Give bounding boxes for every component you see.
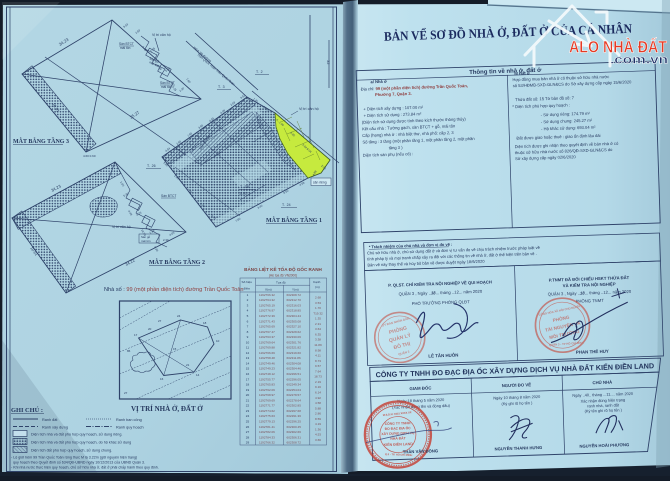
- svg-text:602300.45: 602300.45: [287, 425, 302, 429]
- svg-text:19: 19: [246, 388, 250, 392]
- svg-text:602312.70: 602312.70: [287, 298, 302, 302]
- svg-text:Diện tích nhà và đất phù hợp q: Diện tích nhà và đất phù hợp quy hoạch, …: [31, 433, 122, 437]
- svg-text:1192769.69: 1192769.69: [259, 398, 275, 402]
- svg-text:602301.76: 602301.76: [287, 340, 302, 344]
- svg-text:602302.66: 602302.66: [287, 430, 302, 434]
- svg-text:602291.36: 602291.36: [287, 414, 302, 418]
- svg-text:27: 27: [158, 319, 162, 323]
- svg-text:1192769.64: 1192769.64: [259, 340, 275, 344]
- svg-text:Ranh xây dựng: Ranh xây dựng: [42, 426, 68, 430]
- svg-text:4.53: 4.53: [315, 433, 321, 437]
- svg-text:a/ Nhà ở: a/ Nhà ở: [370, 79, 387, 85]
- svg-text:3.38: 3.38: [315, 338, 321, 342]
- svg-text:602327.10: 602327.10: [287, 325, 302, 329]
- svg-text:11: 11: [246, 346, 249, 350]
- svg-text:602296.25: 602296.25: [287, 420, 302, 424]
- svg-text:1.70: 1.70: [315, 306, 321, 310]
- svg-text:Y(m): Y(m): [292, 288, 299, 292]
- svg-text:602302.85: 602302.85: [287, 404, 302, 408]
- svg-text:9: 9: [247, 335, 249, 339]
- svg-text:Tọa độ: Tọa độ: [276, 281, 286, 285]
- svg-text:1192755.77: 1192755.77: [259, 377, 275, 381]
- svg-text:28: 28: [246, 435, 250, 439]
- svg-text:6.35: 6.35: [315, 332, 321, 336]
- svg-text:Nhà số : 99 (một phần diện tíc: Nhà số : 99 (một phần diện tích) đường T…: [104, 287, 243, 293]
- svg-text:1192765.19: 1192765.19: [259, 303, 275, 307]
- svg-text:1192762.09: 1192762.09: [259, 388, 275, 392]
- svg-text:2.19: 2.19: [315, 380, 321, 384]
- svg-text:NHÀ ĐẤT: NHÀ ĐẤT: [390, 435, 406, 441]
- svg-text:1.35: 1.35: [315, 317, 321, 321]
- svg-text:602296.51: 602296.51: [287, 372, 302, 376]
- svg-text:602304.08: 602304.08: [287, 362, 302, 366]
- svg-text:20: 20: [148, 327, 152, 331]
- svg-text:602278.64: 602278.64: [287, 398, 302, 402]
- svg-text:1192784.33: 1192784.33: [259, 435, 275, 439]
- svg-text:3.64: 3.64: [315, 327, 321, 331]
- svg-text:VỊ TRÍ NHÀ Ở, ĐẤT Ở: VỊ TRÍ NHÀ Ở, ĐẤT Ở: [131, 405, 203, 413]
- svg-text:17: 17: [246, 377, 250, 381]
- svg-text:Diện tích nhà và đất phù hợp q: Diện tích nhà và đất phù hợp quy hoạch, …: [31, 441, 131, 445]
- svg-text:Ranh ban công: Ranh ban công: [116, 418, 142, 422]
- svg-text:602328.62: 602328.62: [287, 330, 302, 334]
- svg-text:26: 26: [246, 425, 250, 429]
- svg-text:10: 10: [246, 340, 250, 344]
- svg-text:GHI CHÚ :: GHI CHÚ :: [11, 406, 43, 414]
- svg-text:(m): (m): [315, 285, 320, 289]
- svg-text:b/ Đất ở: b/ Đất ở: [514, 71, 530, 76]
- svg-text:9.16: 9.16: [315, 385, 321, 389]
- svg-text:(Hệ tọa độ VN2000): (Hệ tọa độ VN2000): [269, 274, 297, 278]
- svg-text:20: 20: [246, 393, 250, 397]
- svg-text:Cạnh: Cạnh: [313, 280, 321, 284]
- svg-text:25: 25: [246, 420, 250, 424]
- svg-text:1192765.69: 1192765.69: [259, 325, 275, 329]
- svg-text:2.86: 2.86: [315, 412, 321, 416]
- svg-text:602308.72: 602308.72: [287, 293, 302, 297]
- svg-text:mái tôn: mái tôn: [120, 46, 131, 50]
- svg-text:86: 86: [127, 349, 131, 353]
- svg-text:5: 5: [247, 314, 249, 318]
- svg-text:1192764.32: 1192764.32: [259, 298, 275, 302]
- svg-text:4: 4: [247, 309, 249, 313]
- svg-text:602254.04: 602254.04: [287, 388, 302, 392]
- svg-text:5.88: 5.88: [315, 406, 321, 410]
- svg-text:Ranh đất: Ranh đất: [42, 418, 58, 422]
- svg-text:3.66: 3.66: [315, 438, 321, 442]
- svg-text:602304.44: 602304.44: [287, 314, 302, 318]
- svg-text:16: 16: [160, 377, 164, 381]
- svg-text:602249.34: 602249.34: [287, 383, 302, 387]
- svg-text:1192748.12: 1192748.12: [259, 372, 275, 376]
- svg-text:4.58: 4.58: [315, 401, 321, 405]
- svg-text:8: 8: [247, 330, 249, 334]
- svg-text:T19.32: T19.32: [313, 311, 323, 315]
- svg-text:8.59: 8.59: [315, 417, 321, 421]
- svg-text:Vị trí căn hộ: Vị trí căn hộ: [112, 225, 131, 229]
- svg-text:602296.05: 602296.05: [287, 377, 302, 381]
- svg-text:7: 7: [247, 325, 249, 329]
- svg-text:1192749.46: 1192749.46: [259, 362, 275, 366]
- svg-text:1192767.47: 1192767.47: [259, 330, 275, 334]
- svg-text:1: 1: [247, 293, 249, 297]
- svg-text:T. 26: T. 26: [147, 164, 156, 168]
- svg-text:1192782.06: 1192782.06: [259, 430, 275, 434]
- svg-text:602278.57: 602278.57: [287, 393, 302, 397]
- svg-text:mái tôn: mái tôn: [161, 85, 172, 89]
- svg-text:2.68: 2.68: [315, 296, 321, 300]
- svg-text:tầng 3 ): tầng 3 ): [389, 145, 404, 150]
- svg-text:21: 21: [186, 363, 190, 367]
- svg-text:Số hiệu: Số hiệu: [242, 280, 253, 284]
- svg-text:X(m): X(m): [265, 288, 272, 292]
- svg-text:T. 3: T. 3: [218, 85, 225, 89]
- svg-text:quy hoạch theo Quyết định số 6: quy hoạch theo Quyết định số 634/QĐ-UBND…: [13, 461, 145, 465]
- svg-text:MẰT BẰNG TẦNG 3: MẰT BẰNG TẦNG 3: [13, 137, 69, 145]
- svg-text:24: 24: [177, 314, 181, 318]
- svg-text:602321.82: 602321.82: [287, 346, 302, 350]
- svg-text:602306.31: 602306.31: [287, 435, 302, 439]
- svg-text:4.92: 4.92: [315, 396, 321, 400]
- svg-text:NGƯỜI ĐO VẼ: NGƯỜI ĐO VẼ: [502, 382, 532, 388]
- svg-text:1192779.13: 1192779.13: [259, 420, 275, 424]
- svg-text:1192769.88: 1192769.88: [259, 346, 275, 350]
- svg-text:- Lộ giới hẻm 99 Trần Quốc Toả: - Lộ giới hẻm 99 Trần Quốc Toản rộng thự…: [11, 456, 137, 460]
- svg-text:GIAM ĐỐC: GIAM ĐỐC: [409, 385, 431, 391]
- svg-text:điểm: điểm: [244, 287, 251, 291]
- svg-text:23: 23: [246, 409, 250, 413]
- svg-text:8.73: 8.73: [315, 359, 321, 363]
- svg-text:T. 16: T. 16: [240, 185, 249, 189]
- svg-text:Vị trí căn hộ: Vị trí căn hộ: [299, 107, 319, 111]
- svg-text:mái tôn: mái tôn: [141, 239, 151, 243]
- svg-text:602316.03: 602316.03: [287, 303, 302, 307]
- svg-text:T. 2: T. 2: [256, 70, 263, 74]
- svg-text:BẢNG LIỆT KÊ TỐA ĐỘ GỐC RANH: BẢNG LIỆT KÊ TỐA ĐỘ GỐC RANH: [244, 265, 322, 272]
- svg-text:15: 15: [246, 367, 250, 371]
- svg-text:602297.68: 602297.68: [287, 409, 302, 413]
- svg-text:1192772.39: 1192772.39: [259, 314, 275, 318]
- svg-text:16: 16: [246, 372, 250, 376]
- svg-text:(Ký ghi rõ họ tên ): (Ký ghi rõ họ tên ): [501, 400, 533, 406]
- svg-text:1192768.97: 1192768.97: [259, 393, 275, 397]
- svg-text:14: 14: [196, 373, 200, 377]
- svg-text:CHỦ NHÀ: CHỦ NHÀ: [592, 380, 612, 386]
- svg-text:Ranh quy hoạch: Ranh quy hoạch: [116, 426, 144, 430]
- svg-text:4.19: 4.19: [315, 422, 321, 426]
- svg-text:14: 14: [246, 362, 250, 366]
- svg-text:13: 13: [246, 356, 250, 360]
- svg-text:PHÒNG TNMT: PHÒNG TNMT: [576, 298, 605, 304]
- svg-text:1192774.62: 1192774.62: [259, 409, 275, 413]
- svg-text:9.57: 9.57: [315, 364, 321, 368]
- svg-text:1192775.63: 1192775.63: [259, 414, 275, 418]
- svg-text:11.89: 11.89: [314, 343, 322, 347]
- svg-text:2.30: 2.30: [163, 238, 169, 242]
- svg-text:1192749.23: 1192749.23: [259, 367, 275, 371]
- svg-text:PHAN THẾ HUY: PHAN THẾ HUY: [576, 349, 609, 355]
- svg-text:17: 17: [134, 333, 138, 337]
- svg-text:Vị trí căn hộ: Vị trí căn hộ: [152, 33, 171, 37]
- svg-text:1192765.83: 1192765.83: [259, 383, 275, 387]
- svg-text:1102.1: 1102.1: [239, 192, 250, 196]
- svg-text:CÔNG TY TNHH: CÔNG TY TNHH: [385, 420, 411, 426]
- svg-text:27: 27: [124, 391, 128, 395]
- svg-text:.com.vn: .com.vn: [610, 55, 668, 67]
- svg-text:6: 6: [247, 319, 249, 323]
- svg-text:3: 3: [247, 303, 249, 307]
- svg-text:KIẾN ĐIỀN LAND: KIẾN ĐIỀN LAND: [384, 441, 414, 447]
- svg-text:602311.86: 602311.86: [287, 356, 301, 360]
- svg-text:- Khi nhà nước thực hiện quy h: - Khi nhà nước thực hiện quy hoạch, chủ …: [11, 466, 159, 470]
- svg-text:Sàn BTCT: Sàn BTCT: [161, 194, 176, 198]
- svg-text:1192763.37: 1192763.37: [259, 335, 275, 339]
- svg-text:15: 15: [173, 347, 177, 351]
- svg-text:32: 32: [326, 60, 331, 65]
- svg-text:10: 10: [216, 339, 220, 343]
- svg-text:1.36: 1.36: [315, 427, 321, 431]
- svg-text:602308.72: 602308.72: [287, 441, 302, 445]
- svg-text:7.64: 7.64: [315, 369, 321, 373]
- svg-text:1192771.77: 1192771.77: [259, 404, 275, 408]
- svg-text:602304.46: 602304.46: [287, 367, 302, 371]
- svg-text:4.11: 4.11: [315, 354, 321, 358]
- svg-text:602305.08: 602305.08: [287, 319, 302, 323]
- svg-text:18: 18: [246, 383, 250, 387]
- svg-text:MẰT BẰNG TẦNG 2: MẰT BẰNG TẦNG 2: [149, 258, 205, 266]
- svg-text:6.14: 6.14: [315, 391, 321, 395]
- svg-text:1192766.32: 1192766.32: [259, 293, 275, 297]
- svg-text:2: 2: [247, 298, 249, 302]
- svg-text:18.73: 18.73: [314, 375, 322, 379]
- svg-text:1192771.43: 1192771.43: [259, 319, 275, 323]
- svg-text:T. 24: T. 24: [282, 203, 291, 207]
- svg-text:1192781.41: 1192781.41: [259, 425, 275, 429]
- svg-text:3.53: 3.53: [315, 301, 321, 305]
- svg-text:1192776.97: 1192776.97: [259, 309, 275, 313]
- svg-text:LÊ TÂN HUÔN: LÊ TÂN HUÔN: [428, 353, 458, 359]
- svg-text:22: 22: [246, 404, 250, 408]
- svg-text:4.60 0.60: 4.60 0.60: [83, 154, 96, 158]
- svg-text:27: 27: [246, 430, 250, 434]
- svg-text:21: 21: [246, 398, 250, 402]
- svg-text:1192766.69: 1192766.69: [259, 351, 275, 355]
- svg-text:2.31: 2.31: [315, 322, 321, 326]
- svg-text:24: 24: [246, 414, 250, 418]
- svg-text:1192766.32: 1192766.32: [259, 441, 275, 445]
- svg-text:MẰT BẰNG TẦNG 1: MẰT BẰNG TẦNG 1: [266, 216, 322, 224]
- svg-text:sân riêng: sân riêng: [313, 181, 327, 185]
- svg-text:602318.85: 602318.85: [287, 309, 302, 313]
- svg-text:8.98: 8.98: [315, 348, 321, 352]
- svg-text:602319.60: 602319.60: [287, 351, 302, 355]
- svg-text:12: 12: [246, 351, 250, 355]
- svg-text:ĐO ĐẠC ĐỊA ỐC: ĐO ĐẠC ĐỊA ỐC: [385, 425, 412, 431]
- svg-text:18: 18: [203, 321, 207, 325]
- svg-text:602330.06: 602330.06: [287, 335, 302, 339]
- svg-text:Diện tích đất phù hợp quy hoạc: Diện tích đất phù hợp quy hoạch, sử dụng…: [31, 449, 112, 453]
- svg-text:29: 29: [246, 441, 250, 445]
- svg-text:1192758.48: 1192758.48: [259, 356, 275, 360]
